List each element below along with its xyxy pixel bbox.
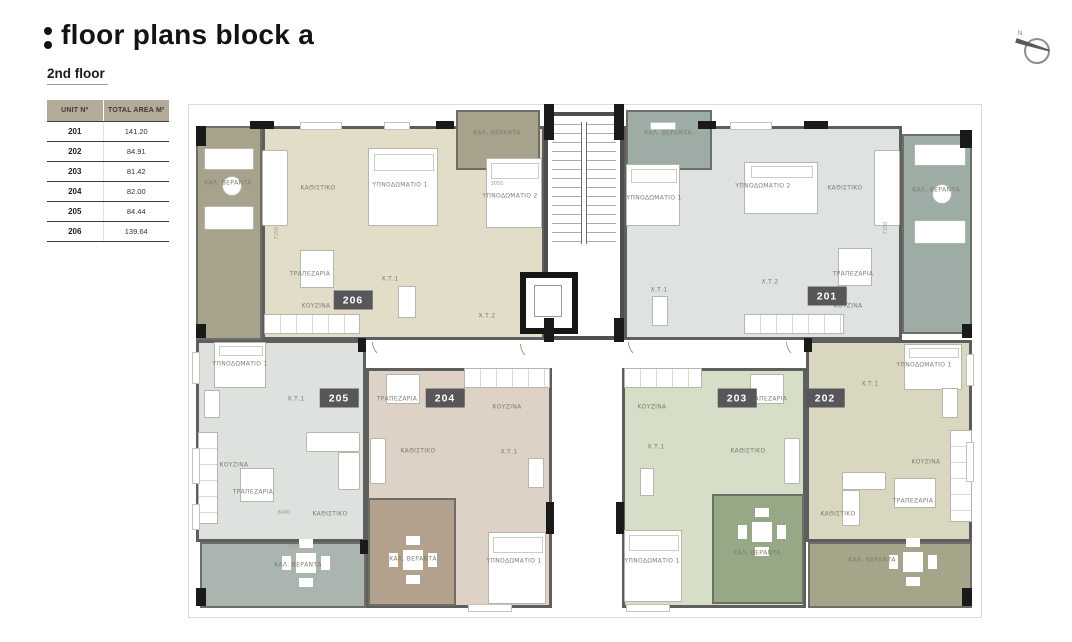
wall-column [614,318,624,342]
unit-201-top-veranda [626,110,712,170]
room-label: ΤΡΑΠΕΖΑΡΙΑ [833,271,873,278]
room-label: ΤΡΑΠΕΖΑΡΙΑ [893,498,933,505]
window [192,448,200,484]
sofa [842,490,860,526]
dimension-label: 5890 [288,544,301,550]
stair-stringer [581,122,587,244]
sofa [204,148,254,170]
dimension-label: 7250 [883,222,889,235]
room-label: ΤΡΑΠΕΖΑΡΙΑ [290,271,330,278]
room-label: ΚΑΘΙΣΤΙΚΟ [312,511,347,518]
room-label: ΚΟΥΖΙΝΑ [220,462,249,469]
kitchen-counter [624,368,702,388]
room-label: ΚΑΛ. ΒΕΡΑΝΤΑ [473,130,520,137]
window [626,604,670,612]
dimension-label: 8400 [278,510,291,516]
dining-table [838,248,872,286]
room-label: Χ.Τ.1 [862,381,879,388]
page: floor plans block a 2nd floor UNIT Nº TO… [0,0,1072,642]
room-label: ΥΠΝΟΔΩΜΑΤΙΟ 1 [212,361,267,368]
room-label: ΚΑΛ. ΒΕΡΑΝΤΑ [848,557,895,564]
sofa [338,452,360,490]
sofa [204,206,254,230]
wall-column [960,130,972,148]
room-label: Χ.Τ.1 [382,276,399,283]
bed [624,530,682,602]
room-label: Χ.Τ.1 [288,396,305,403]
room-label: ΥΠΝΟΔΩΜΑΤΙΟ 2 [735,183,790,190]
room-label: ΚΟΥΖΙΝΑ [302,303,331,310]
bath-fixture [652,296,668,326]
dimension-label: 3050 [491,181,504,187]
room-label: ΚΑΘΙΣΤΙΚΟ [300,185,335,192]
sofa [306,432,360,452]
sofa [842,472,886,490]
room-label: ΚΑΘΙΣΤΙΚΟ [827,185,862,192]
window [730,122,772,130]
room-label: Χ.Τ.1 [651,287,668,294]
bath-fixture [204,390,220,418]
room-label: Χ.Τ.2 [479,313,496,320]
wall-column [436,121,454,129]
wall-column [544,318,554,342]
room-label: ΚΑΛ. ΒΕΡΑΝΤΑ [204,180,251,187]
room-label: ΚΑΛ. ΒΕΡΑΝΤΑ [644,130,691,137]
room-label: ΥΠΝΟΔΩΜΑΤΙΟ 1 [896,362,951,369]
room-label: ΚΟΥΖΙΝΑ [638,404,667,411]
room-label: ΚΑΘΙΣΤΙΚΟ [820,511,855,518]
room-label: ΚΑΘΙΣΤΙΚΟ [400,448,435,455]
kitchen-counter [464,368,550,388]
wall-column [544,104,554,140]
sofa [914,144,966,166]
wall-column [804,338,812,352]
room-label: ΥΠΝΟΔΩΜΑΤΙΟ 2 [482,193,537,200]
room-label: ΥΠΝΟΔΩΜΑΤΙΟ 1 [624,558,679,565]
sofa [914,220,966,244]
unit-badge-205: 205 [320,389,359,408]
veranda-table-set [889,538,937,586]
window [192,352,200,384]
wall-column [546,502,554,534]
elevator-cab [534,285,562,317]
sofa [874,150,900,226]
wall-column [962,324,972,338]
dining-table [240,468,274,502]
wall-column [804,121,828,129]
wall-column [616,502,624,534]
room-label: ΚΑΛ. ΒΕΡΑΝΤΑ [733,550,780,557]
wall-column [196,126,206,146]
unit-badge-204: 204 [426,389,465,408]
window [966,442,974,482]
window [300,122,342,130]
room-label: ΥΠΝΟΔΩΜΑΤΙΟ 1 [372,182,427,189]
room-label: Χ.Τ.1 [648,444,665,451]
wall-column [250,121,274,129]
room-label: ΚΑΛ. ΒΕΡΑΝΤΑ [389,556,436,563]
wall-column [360,540,368,554]
dimension-label: 7250 [274,227,280,240]
bath-fixture [528,458,544,488]
wall-column [698,121,716,129]
bath-fixture [640,468,654,496]
room-label: Χ.Τ.2 [762,279,779,286]
kitchen-counter [198,432,218,524]
wall-column [196,588,206,606]
room-label: ΤΡΑΠΕΖΑΡΙΑ [377,396,417,403]
unit-badge-203: 203 [718,389,757,408]
sofa [370,438,386,484]
room-label: ΥΠΝΟΔΩΜΑΤΙΟ 1 [486,558,541,565]
room-label: ΚΑΘΙΣΤΙΚΟ [730,448,765,455]
bed [488,532,546,604]
kitchen-counter [264,314,360,334]
room-label: ΚΑΛ. ΒΕΡΑΝΤΑ [912,187,959,194]
wall-column [358,338,366,352]
window [468,604,512,612]
bath-fixture [942,388,958,418]
room-label: Χ.Τ.1 [501,449,518,456]
window [966,354,974,386]
unit-badge-206: 206 [334,291,373,310]
room-label: ΚΑΛ. ΒΕΡΑΝΤΑ [274,562,321,569]
kitchen-counter [744,314,844,334]
bath-fixture [398,286,416,318]
room-label: ΚΟΥΖΙΝΑ [493,404,522,411]
room-label: ΚΟΥΖΙΝΑ [912,459,941,466]
sofa [262,150,288,226]
window [384,122,410,130]
dining-table [300,250,334,288]
wall-column [614,104,624,140]
floor-plan: ΚΑΛ. ΒΕΡΑΝΤΑΚΑΘΙΣΤΙΚΟΥΠΝΟΔΩΜΑΤΙΟ 1ΥΠΝΟΔΩ… [0,0,1072,642]
room-label: ΤΡΑΠΕΖΑΡΙΑ [233,489,273,496]
wall-column [196,324,206,338]
window [192,504,200,530]
room-label: ΥΠΝΟΔΩΜΑΤΙΟ 1 [626,195,681,202]
unit-badge-202: 202 [806,389,845,408]
sofa [784,438,800,484]
wall-column [962,588,972,606]
unit-badge-201: 201 [808,287,847,306]
